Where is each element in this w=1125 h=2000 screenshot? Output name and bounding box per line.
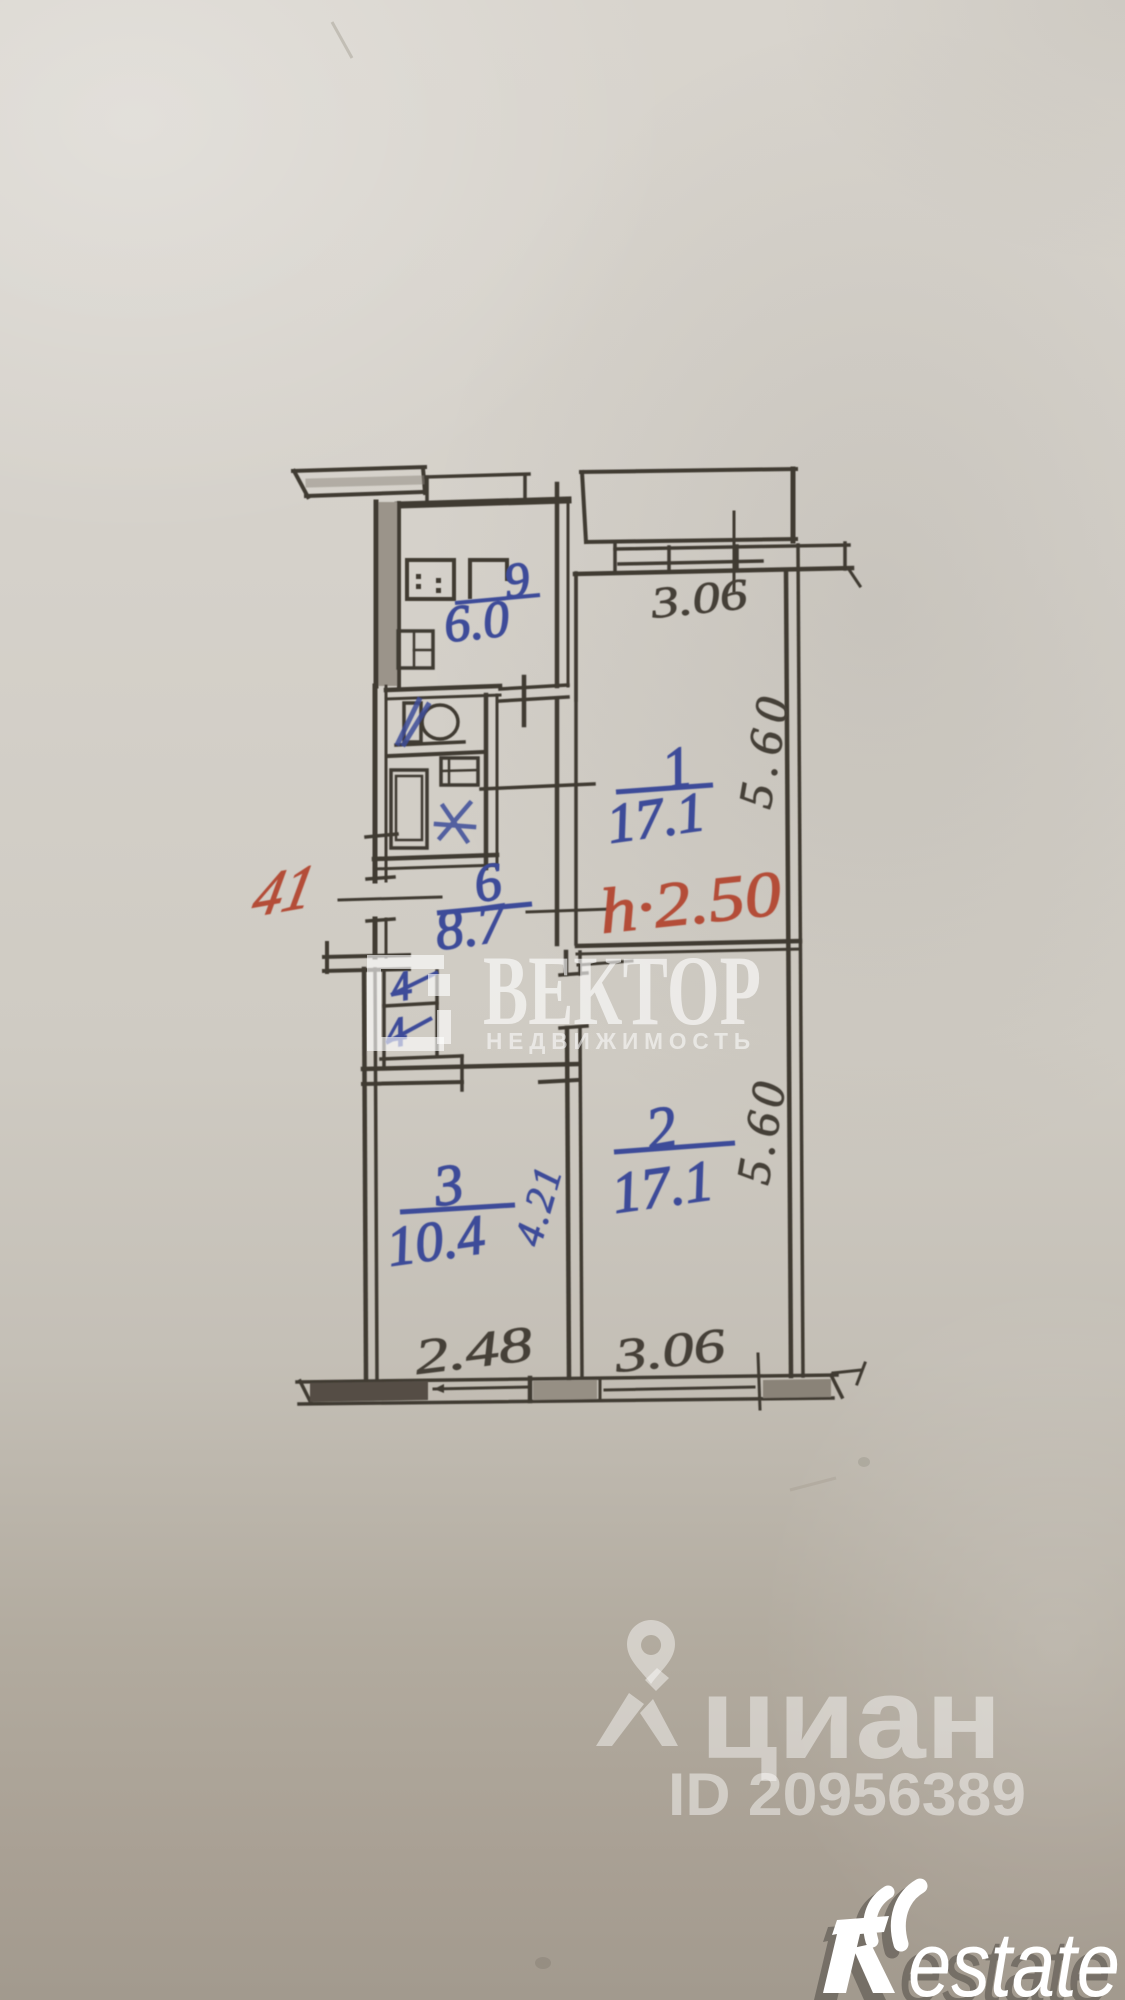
svg-text:estate: estate — [908, 1914, 1120, 2000]
svg-text:3.06: 3.06 — [611, 1319, 727, 1383]
svg-text:h·2.50: h·2.50 — [596, 857, 784, 947]
svg-text:НЕДВИЖИМОСТЬ: НЕДВИЖИМОСТЬ — [486, 1028, 756, 1054]
svg-text:5.60: 5.60 — [727, 1072, 798, 1188]
svg-text:10.4: 10.4 — [383, 1204, 489, 1279]
svg-text:17.1: 17.1 — [608, 1147, 718, 1225]
svg-text:2.48: 2.48 — [412, 1315, 536, 1385]
svg-text:41: 41 — [247, 851, 321, 931]
svg-text:3.06: 3.06 — [648, 569, 750, 628]
svg-text:5.60: 5.60 — [729, 685, 802, 812]
svg-text:ID 20956389: ID 20956389 — [668, 1761, 1026, 1828]
svg-text:4.21: 4.21 — [505, 1159, 571, 1250]
